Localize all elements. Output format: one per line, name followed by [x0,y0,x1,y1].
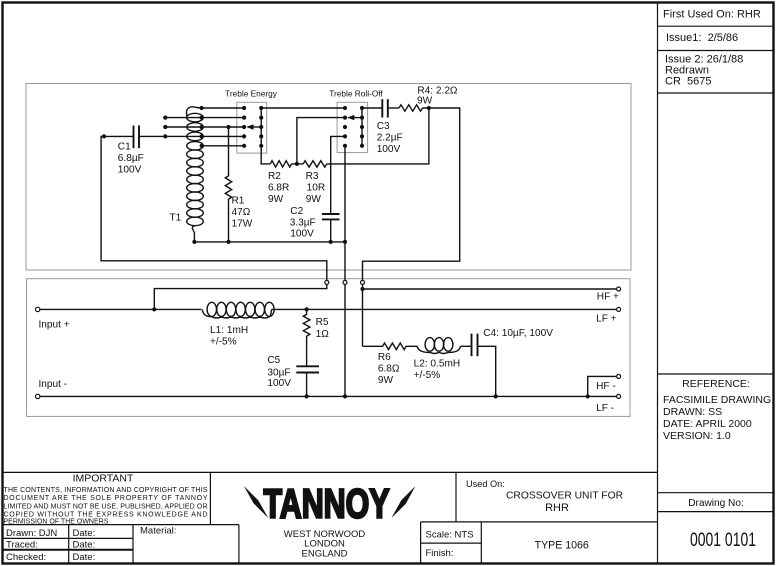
svg-text:HF -: HF - [596,381,616,392]
svg-text:Drawn: DJN: Drawn: DJN [6,528,57,539]
svg-text:0001 0101: 0001 0101 [690,530,756,551]
svg-text:R6: R6 [378,352,391,363]
svg-text:C5: C5 [267,355,280,366]
svg-text:TANNOY: TANNOY [264,480,390,527]
svg-text:CROSSOVER UNIT FOR: CROSSOVER UNIT FOR [506,491,623,502]
svg-text:First Used On: RHR: First Used On: RHR [663,9,761,21]
svg-text:Checked:: Checked: [6,552,46,563]
svg-text:9W: 9W [417,96,433,107]
svg-text:R3: R3 [306,171,319,182]
svg-text:+/-5%: +/-5% [414,370,441,381]
svg-text:LF +: LF + [596,314,617,325]
svg-text:9W: 9W [378,375,394,386]
svg-text:1Ω: 1Ω [316,329,330,340]
svg-text:L1: 1mH: L1: 1mH [210,325,248,336]
svg-text:17W: 17W [232,219,253,230]
svg-text:R2: R2 [268,171,281,182]
svg-text:6.8Ω: 6.8Ω [378,364,400,375]
svg-text:C3: C3 [377,121,390,132]
svg-text:LIMITED AND MUST NOT BE USE, P: LIMITED AND MUST NOT BE USE, PUBLISHED, … [4,503,208,510]
svg-text:RHR: RHR [545,502,569,514]
svg-text:LF -: LF - [596,403,614,414]
svg-text:Drawing No:: Drawing No: [688,498,744,509]
svg-text:6.8µF: 6.8µF [118,153,144,164]
svg-text:IMPORTANT: IMPORTANT [73,473,134,485]
svg-text:REFERENCE:: REFERENCE: [682,378,750,390]
svg-text:Date:: Date: [73,528,96,539]
svg-text:10R: 10R [307,183,326,194]
svg-text:ENGLAND: ENGLAND [302,549,348,560]
svg-text:100V: 100V [118,165,142,176]
svg-text:Treble Energy: Treble Energy [225,89,278,99]
svg-text:Finish:: Finish: [426,548,454,559]
svg-text:HF +: HF + [597,292,619,303]
svg-text:FACSIMILE DRAWING.: FACSIMILE DRAWING. [663,394,774,406]
svg-text:Input +: Input + [39,320,70,331]
svg-text:CR 5675: CR 5675 [665,76,711,88]
svg-text:2.2µF: 2.2µF [377,133,403,144]
svg-text:DOCUMENT ARE THE SOLE PROPERTY: DOCUMENT ARE THE SOLE PROPERTY OF TANNOY [4,495,208,502]
svg-text:3.3µF: 3.3µF [290,218,316,229]
svg-text:R5: R5 [316,317,329,328]
svg-text:R1: R1 [232,196,245,207]
svg-text:Date:: Date: [73,552,96,563]
svg-text:L2: 0.5mH: L2: 0.5mH [414,359,461,370]
svg-text:100V: 100V [377,144,401,155]
svg-text:DRAWN: SS: DRAWN: SS [663,406,722,418]
svg-text:47Ω: 47Ω [232,207,251,218]
svg-text:Input -: Input - [39,379,68,390]
svg-text:Material:: Material: [140,526,176,537]
svg-text:THE CONTENTS, INFORMATION AND: THE CONTENTS, INFORMATION AND COPYRIGHT … [4,487,208,494]
svg-text:Issue1: 2/5/86: Issue1: 2/5/86 [666,32,738,44]
svg-text:+/-5%: +/-5% [210,337,237,348]
svg-text:TYPE 1066: TYPE 1066 [535,540,589,552]
svg-text:30µF: 30µF [267,368,290,379]
svg-text:9W: 9W [306,194,322,205]
svg-text:Scale: NTS: Scale: NTS [426,530,474,541]
svg-text:T1: T1 [170,213,182,224]
svg-text:PERMISSION OF THE OWNERS: PERMISSION OF THE OWNERS [4,519,109,526]
svg-text:C4: 10µF, 100V: C4: 10µF, 100V [483,328,553,339]
svg-text:Used On:: Used On: [466,479,505,489]
svg-text:VERSION: 1.0: VERSION: 1.0 [663,430,731,442]
svg-text:Traced:: Traced: [6,540,38,551]
svg-text:C2: C2 [290,206,303,217]
svg-text:C1: C1 [118,142,131,153]
svg-text:Date:: Date: [73,540,96,551]
svg-text:DATE: APRIL 2000: DATE: APRIL 2000 [663,418,752,430]
svg-text:6.8R: 6.8R [268,183,289,194]
svg-text:9W: 9W [268,194,284,205]
svg-text:100V: 100V [267,378,291,389]
svg-text:100V: 100V [290,229,314,240]
svg-text:Treble Roll-Off: Treble Roll-Off [329,89,383,99]
